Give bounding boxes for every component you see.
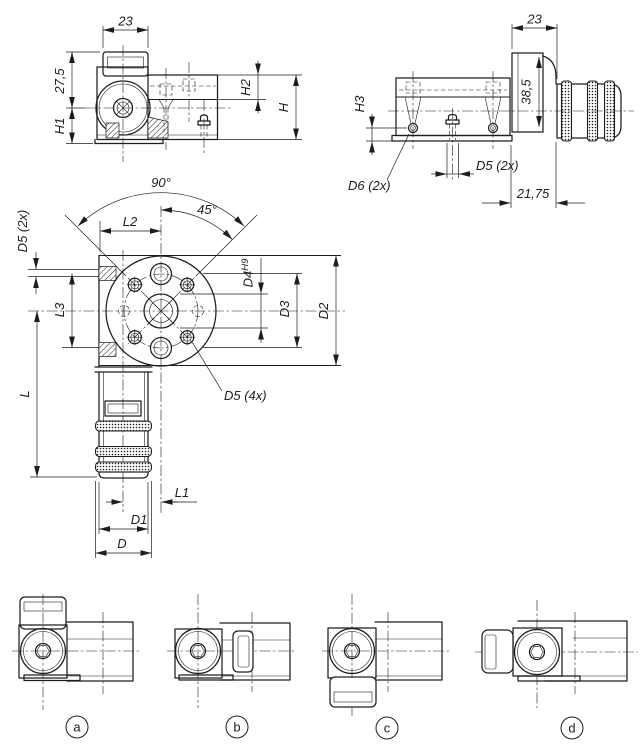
variant-b-tab [233,631,253,672]
variant-c-label: c [384,721,391,736]
dim-d6-label: D6 (2x) [348,178,391,193]
grip-knurl-band [96,462,152,472]
view-side-elevation: 23 38,5 H3 D6 (2x) D5 (2x) 21,75 [348,12,634,209]
grip-knurl-band [96,421,152,431]
main-center-lines [28,206,345,515]
dim-offset-label: 21,75 [516,186,550,201]
dim-d3-label: D3 [277,300,292,317]
variant-a-label: a [73,720,81,735]
variant-a-arm [67,622,133,681]
variant-a: a [12,594,140,738]
thread-hole-hatch-top [99,267,116,281]
front-clamp-tab [103,52,148,76]
variant-b-arm [220,623,290,680]
dim-d1-label: D1 [131,512,148,527]
dim-d4-label: D4H9 [240,258,256,287]
grip-bottom-cap [99,472,148,478]
dim-d2-label: D2 [316,302,331,319]
dim-side-height-label: 38,5 [519,79,534,105]
side-base-plate [392,136,512,142]
variant-d-tab [482,630,513,673]
front-jaw-hatch-left [106,123,119,138]
technical-drawing-canvas: 23 27,5 H1 H2 H [0,0,640,750]
dim-h1-label: H1 [52,118,67,135]
dim-l1-label: L1 [175,485,189,500]
dim-front-height-label: 27,5 [52,68,67,95]
dim-front-width-label: 23 [117,14,133,29]
side-dimensions: 23 38,5 H3 D6 (2x) D5 (2x) 21,75 [348,12,585,209]
dim-h3-label: H3 [352,95,367,112]
side-part-outline [392,53,621,141]
variant-d: d [475,600,638,739]
dim-d-label: D [117,536,126,551]
dim-l2-label: L2 [123,214,138,229]
variant-d-clamp-face [515,630,560,675]
variant-b: b [167,594,296,738]
variant-b-label: b [233,720,240,735]
main-part-outline [95,256,341,479]
main-grip-handle [96,372,152,478]
variant-d-label: d [568,721,575,736]
grip-knurl-band [96,447,152,457]
thread-hole-hatch-bottom [99,343,116,357]
view-main-flange: 90° 45° L2 D5 (2x) L3 L D4H9 D3 D2 D5 (4… [15,175,345,558]
dim-d5-bolt-circle-label: D5 (4x) [224,388,267,403]
variant-d-base [518,676,580,681]
dim-angle-90-label: 90° [151,175,171,190]
technical-drawing-page: 23 27,5 H1 H2 H [0,0,640,750]
main-dimensions: 90° 45° L2 D5 (2x) L3 L D4H9 D3 D2 D5 (4… [15,175,336,558]
view-front-elevation: 23 27,5 H1 H2 H [52,14,302,163]
front-dimensions: 23 27,5 H1 H2 H [52,14,302,144]
front-jaw-hatch-right [148,117,168,138]
variant-c: c [322,594,450,739]
dim-d5-left-label: D5 (2x) [15,210,30,253]
front-center-lines [85,45,232,162]
dim-h-label: H [276,102,291,112]
dim-l-label: L [17,390,32,397]
dim-d4-tolerance: H9 [240,258,251,271]
dim-side-d5-label: D5 (2x) [476,158,519,173]
dim-l3-label: L3 [52,302,67,317]
front-part-outline [95,52,218,144]
dim-side-width-label: 23 [526,12,542,27]
dim-h2-label: H2 [238,78,253,95]
dim-angle-45-label: 45° [197,202,217,217]
